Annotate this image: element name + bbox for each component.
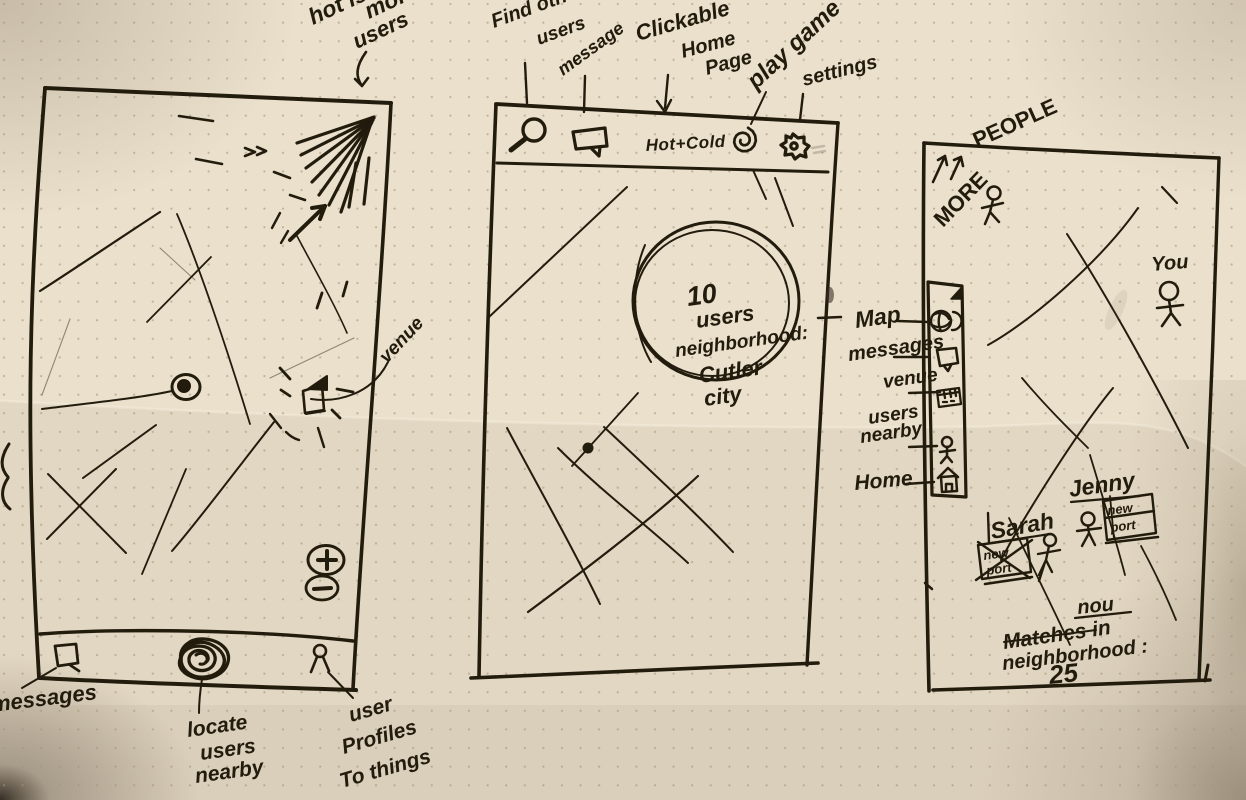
svg-text:You: You <box>1151 251 1190 276</box>
svg-text:25: 25 <box>1046 657 1079 690</box>
